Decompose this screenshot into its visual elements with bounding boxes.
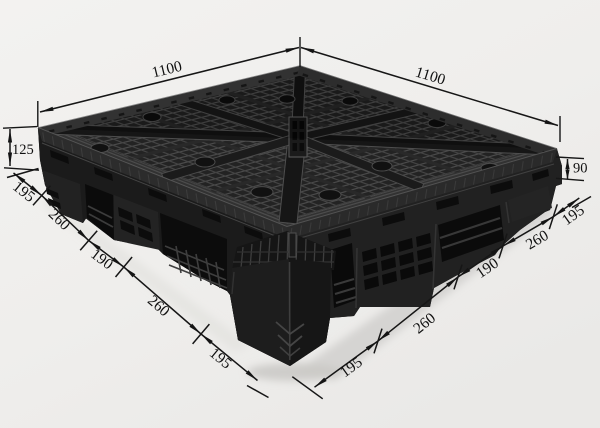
svg-text:125: 125 [12,142,34,158]
svg-text:90: 90 [573,161,588,177]
